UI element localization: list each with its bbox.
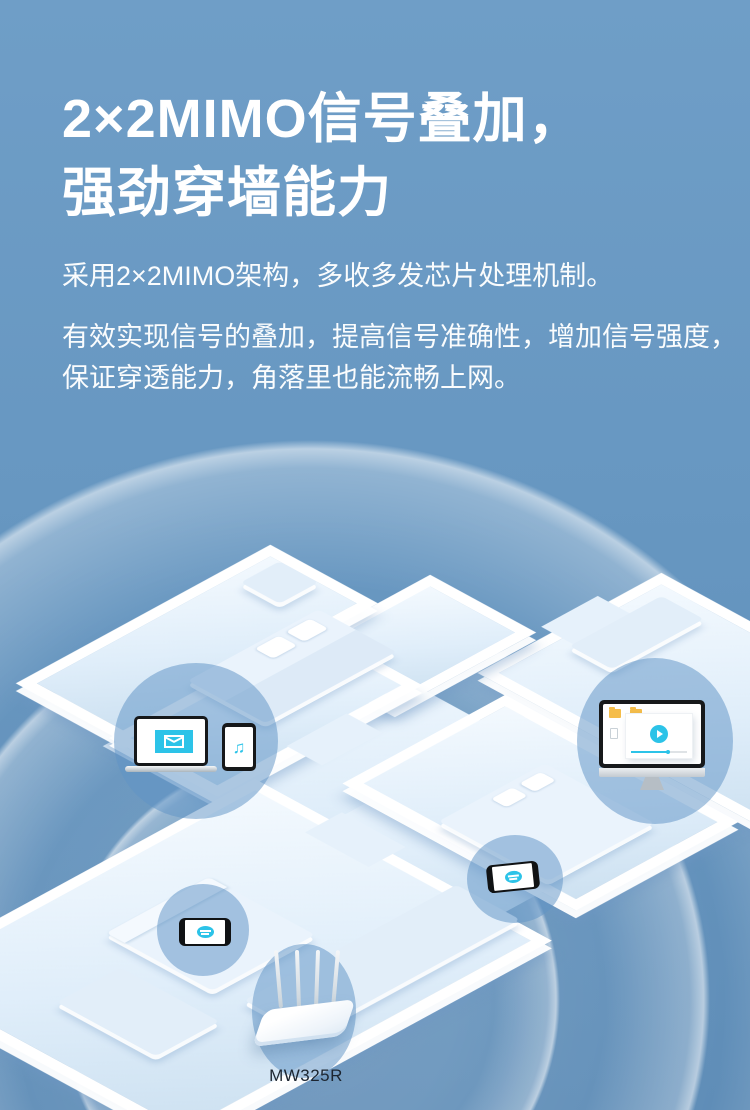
product-model-label: MW325R xyxy=(240,1066,372,1086)
video-progress-bar xyxy=(631,751,687,753)
paragraph-2-line-1: 有效实现信号的叠加，提高信号准确性，增加信号强度， xyxy=(62,322,737,352)
folder-icon xyxy=(609,709,621,718)
router-antenna xyxy=(274,950,283,1008)
smartphone-1 xyxy=(179,918,231,946)
router-body xyxy=(252,999,356,1047)
router-antenna xyxy=(295,950,301,1008)
laptop-base xyxy=(125,766,217,772)
tablet: ♫ xyxy=(222,723,256,771)
paragraph-2-line-2: 保证穿透能力，角落里也能流畅上网。 xyxy=(62,363,521,393)
router-promo-page: 2×2MIMO信号叠加， 强劲穿墙能力 采用2×2MIMO架构，多收多发芯片处理… xyxy=(0,0,750,1110)
smartphone-2 xyxy=(486,860,541,893)
music-note-icon: ♫ xyxy=(233,739,246,756)
router-antenna xyxy=(331,950,340,1008)
title-line-2: 强劲穿墙能力 xyxy=(62,156,583,230)
pillow xyxy=(491,787,528,807)
monitor-chin xyxy=(599,768,705,777)
router-antenna xyxy=(314,950,320,1008)
paragraph-2: 有效实现信号的叠加，提高信号准确性，增加信号强度， 保证穿透能力，角落里也能流畅… xyxy=(62,317,737,399)
laptop xyxy=(125,716,217,778)
laptop-screen xyxy=(134,716,208,766)
headline: 2×2MIMO信号叠加， 强劲穿墙能力 xyxy=(62,82,583,230)
chat-bubble-icon xyxy=(504,870,522,884)
desktop-monitor xyxy=(599,700,705,792)
wifi-router xyxy=(253,950,357,1054)
file-icon xyxy=(610,728,618,739)
play-icon xyxy=(650,725,668,743)
monitor-stand xyxy=(640,777,664,790)
video-player xyxy=(626,714,692,758)
pillow xyxy=(519,772,556,792)
paragraph-1: 采用2×2MIMO架构，多收多发芯片处理机制。 xyxy=(62,256,613,297)
email-icon xyxy=(155,730,193,753)
monitor-screen xyxy=(599,700,705,768)
chat-bubble-icon xyxy=(197,926,214,938)
title-line-1: 2×2MIMO信号叠加， xyxy=(62,82,583,156)
